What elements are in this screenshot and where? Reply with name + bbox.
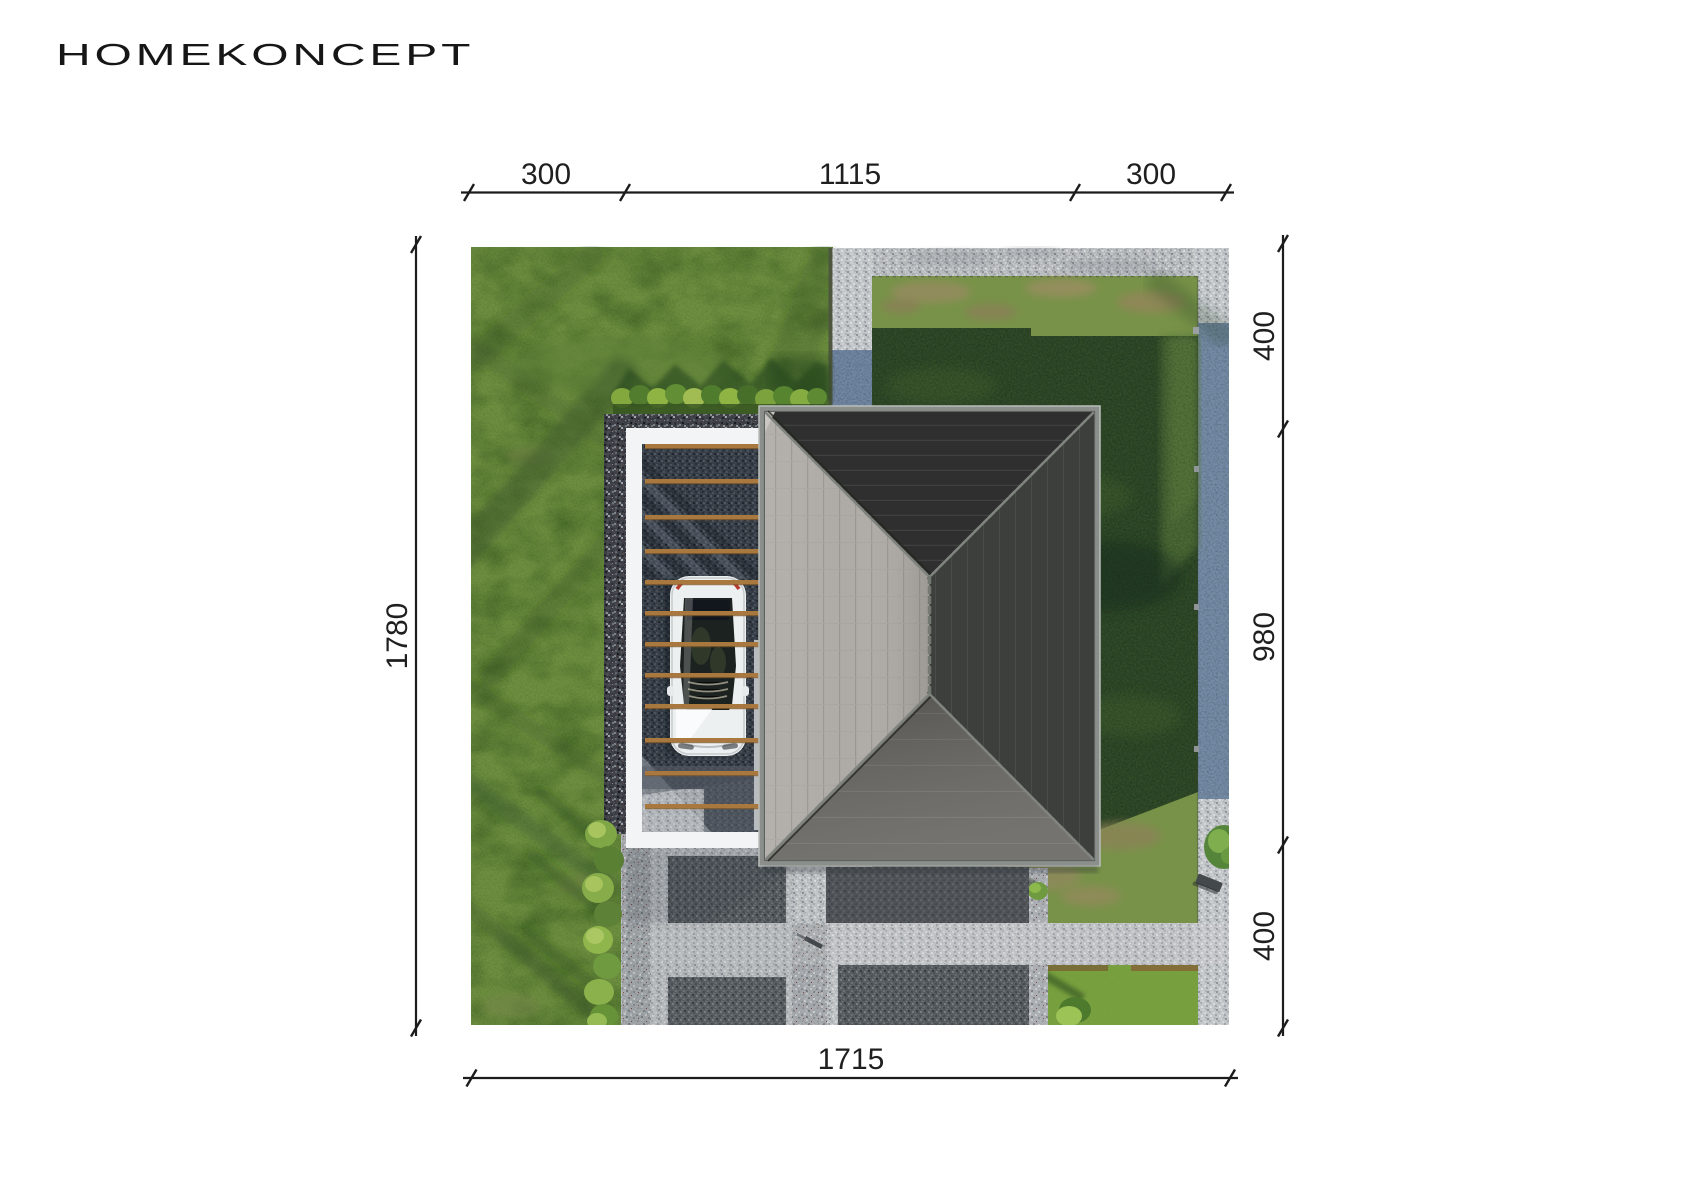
svg-text:HOMEKONCEPT: HOMEKONCEPT — [56, 37, 474, 72]
svg-text:400: 400 — [1248, 311, 1281, 361]
svg-text:300: 300 — [521, 158, 571, 191]
svg-text:400: 400 — [1248, 911, 1281, 961]
svg-text:1715: 1715 — [818, 1043, 885, 1076]
svg-text:1780: 1780 — [381, 603, 414, 670]
svg-text:1115: 1115 — [819, 158, 881, 191]
svg-text:980: 980 — [1248, 612, 1281, 662]
svg-text:300: 300 — [1126, 158, 1176, 191]
